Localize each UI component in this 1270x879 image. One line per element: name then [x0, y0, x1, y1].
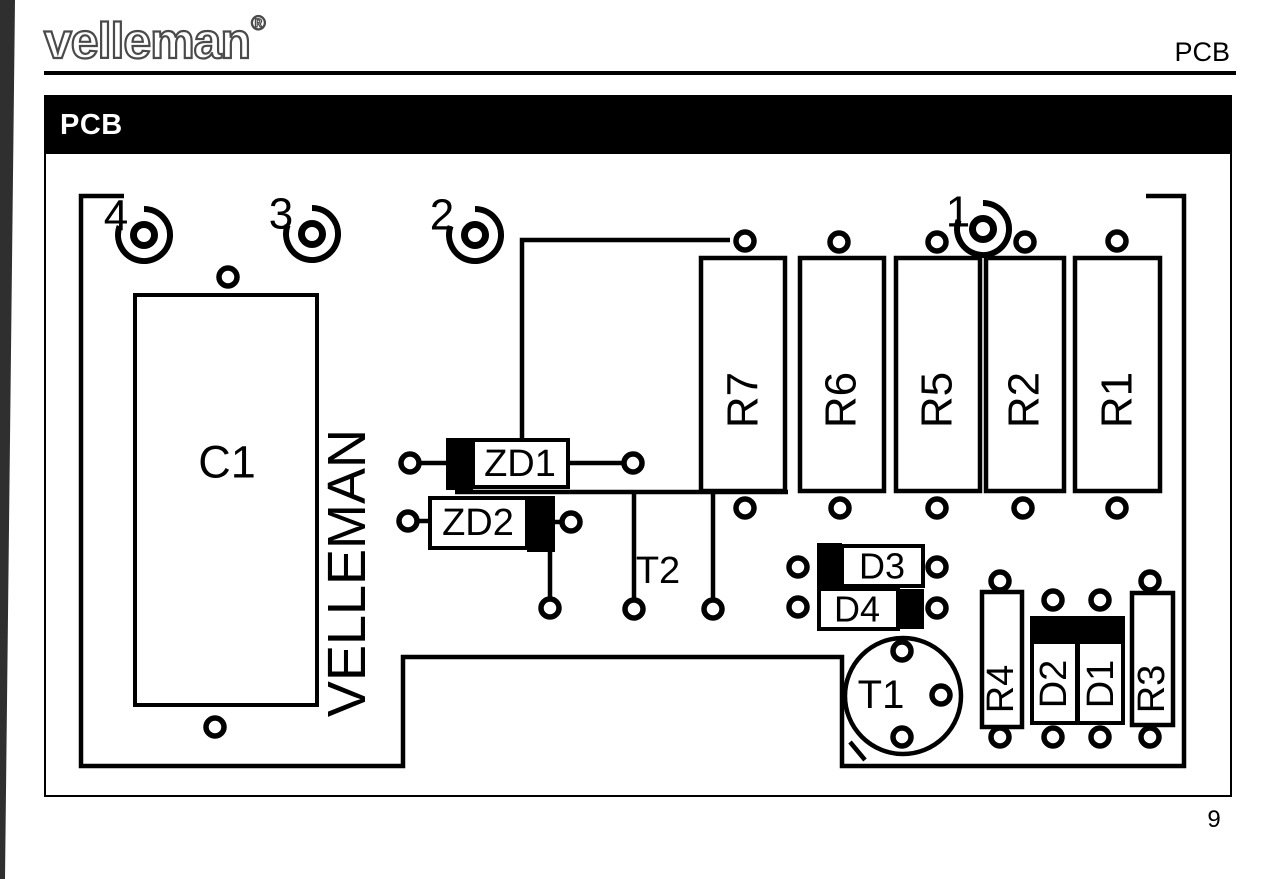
label-zd2: ZD2: [442, 502, 514, 544]
label-r7: R7: [719, 372, 768, 428]
label-r5: R5: [913, 372, 962, 428]
solder-pad: [1091, 591, 1109, 609]
component-d3-cathode-band: [817, 543, 842, 588]
component-d4-cathode-band: [898, 589, 924, 629]
solder-pad: [831, 499, 849, 517]
solder-pad: [206, 718, 224, 736]
wire-pad-3-number: 3: [269, 190, 293, 239]
wire-pad-2: [465, 225, 486, 246]
wire-pad-1: [973, 219, 994, 240]
page-number: 9: [1192, 806, 1236, 834]
solder-pad: [1016, 233, 1034, 251]
solder-pad: [928, 233, 946, 251]
label-d1: D1: [1080, 660, 1122, 709]
label-t1: T1: [858, 673, 905, 717]
silkscreen-brand: VELLEMAN: [317, 429, 377, 717]
wire-pad-2-number: 2: [430, 191, 454, 240]
component-zd2-cathode-band: [527, 496, 555, 552]
label-r2: R2: [1000, 372, 1049, 428]
wire-pad-3: [302, 224, 323, 245]
label-r3: R3: [1131, 665, 1173, 714]
solder-pad: [219, 268, 237, 286]
solder-pad: [736, 499, 754, 517]
solder-pad: [1141, 572, 1159, 590]
solder-pad: [704, 600, 722, 618]
label-r6: R6: [817, 372, 866, 428]
solder-pad: [789, 558, 807, 576]
solder-pad: [991, 572, 1009, 590]
solder-pad: [625, 600, 643, 618]
solder-pad: [399, 512, 417, 530]
solder-pad: [893, 642, 911, 660]
solder-pad: [928, 499, 946, 517]
solder-pad: [1091, 728, 1109, 746]
wire-pad-1-number: 1: [946, 188, 970, 237]
label-r1: R1: [1093, 372, 1142, 428]
label-zd1: ZD1: [484, 443, 556, 485]
solder-pad: [928, 599, 946, 617]
component-d2-cathode-band: [1032, 618, 1077, 644]
label-r4: R4: [980, 665, 1022, 714]
solder-pad: [1141, 728, 1159, 746]
solder-pad: [541, 599, 559, 617]
solder-pad: [562, 513, 580, 531]
label-d4: D4: [834, 589, 880, 630]
solder-pad: [830, 233, 848, 251]
label-d2: D2: [1033, 660, 1075, 709]
solder-pad: [991, 728, 1009, 746]
label-c1: C1: [198, 437, 256, 488]
wire-pad-4-number: 4: [104, 192, 128, 241]
solder-pad: [624, 454, 642, 472]
solder-pad: [736, 232, 754, 250]
solder-pad: [789, 598, 807, 616]
solder-pad: [893, 728, 911, 746]
pcb-layout-diagram: 4 3 2 1 C1 VELLEMAN ZD1 ZD2 T2 R7 R6 R5 …: [0, 0, 1270, 879]
label-t2: T2: [636, 550, 680, 592]
solder-pad: [932, 686, 950, 704]
manual-page: velleman® PCB PCB: [0, 0, 1270, 879]
label-d3: D3: [859, 546, 905, 587]
component-zd1-cathode-band: [446, 438, 473, 490]
component-c1-body: [135, 295, 317, 705]
component-t1-tab: [850, 742, 865, 760]
solder-pad: [1014, 499, 1032, 517]
solder-pad: [928, 558, 946, 576]
solder-pad: [401, 454, 419, 472]
solder-pad: [1044, 728, 1062, 746]
component-d1-cathode-band: [1078, 618, 1123, 644]
solder-pad: [1044, 591, 1062, 609]
solder-pad: [1108, 499, 1126, 517]
wire-pad-4: [134, 225, 155, 246]
solder-pad: [1108, 232, 1126, 250]
